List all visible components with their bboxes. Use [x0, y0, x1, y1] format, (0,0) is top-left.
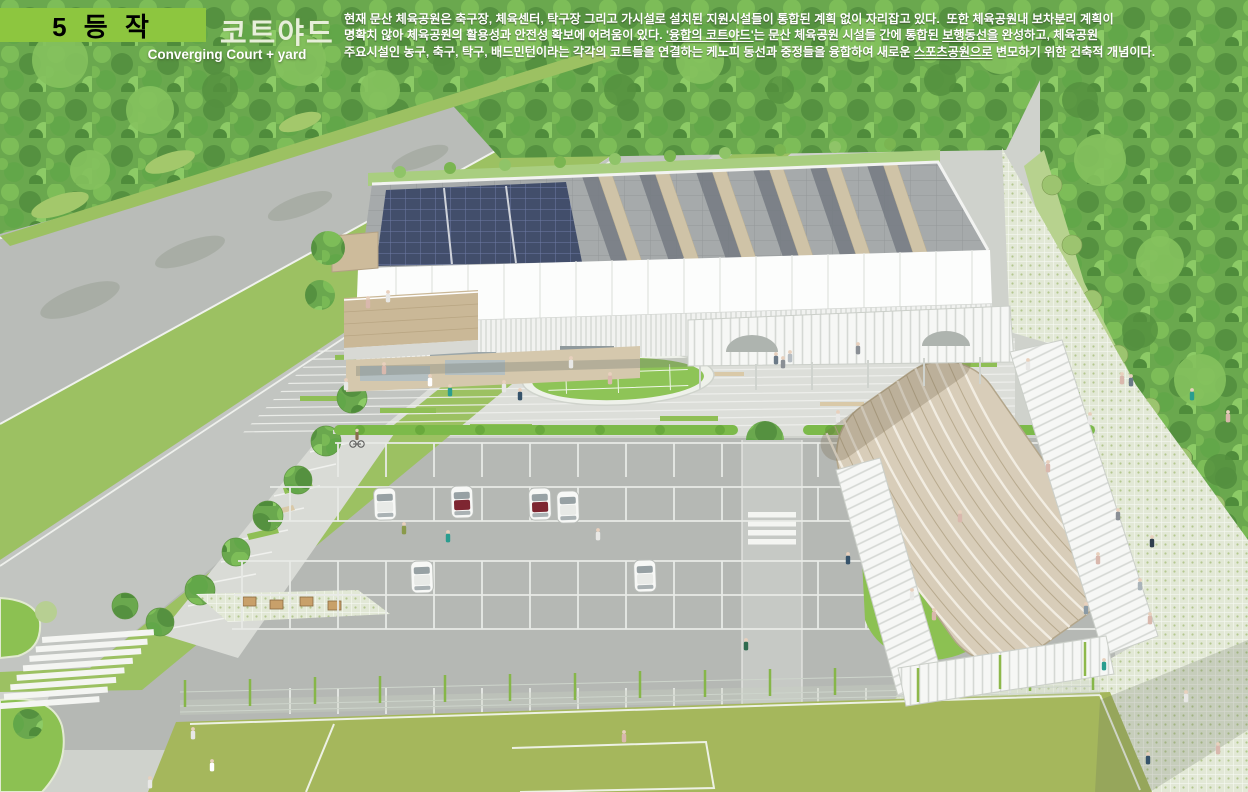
award-badge: 5 등 작 — [0, 8, 206, 42]
solar-panel-array — [376, 182, 582, 266]
project-subtitle-en: Converging Court + yard — [146, 47, 308, 62]
project-title: 코트야드 — [220, 10, 335, 52]
project-description: 현재 문산 체육공원은 축구장, 체육센터, 탁구장 그리고 가시설로 설치된 … — [344, 11, 1246, 60]
site-rendering — [0, 0, 1248, 792]
competition-board: 5 등 작 코트야드 Converging Court + yard 현재 문산… — [0, 0, 1248, 792]
